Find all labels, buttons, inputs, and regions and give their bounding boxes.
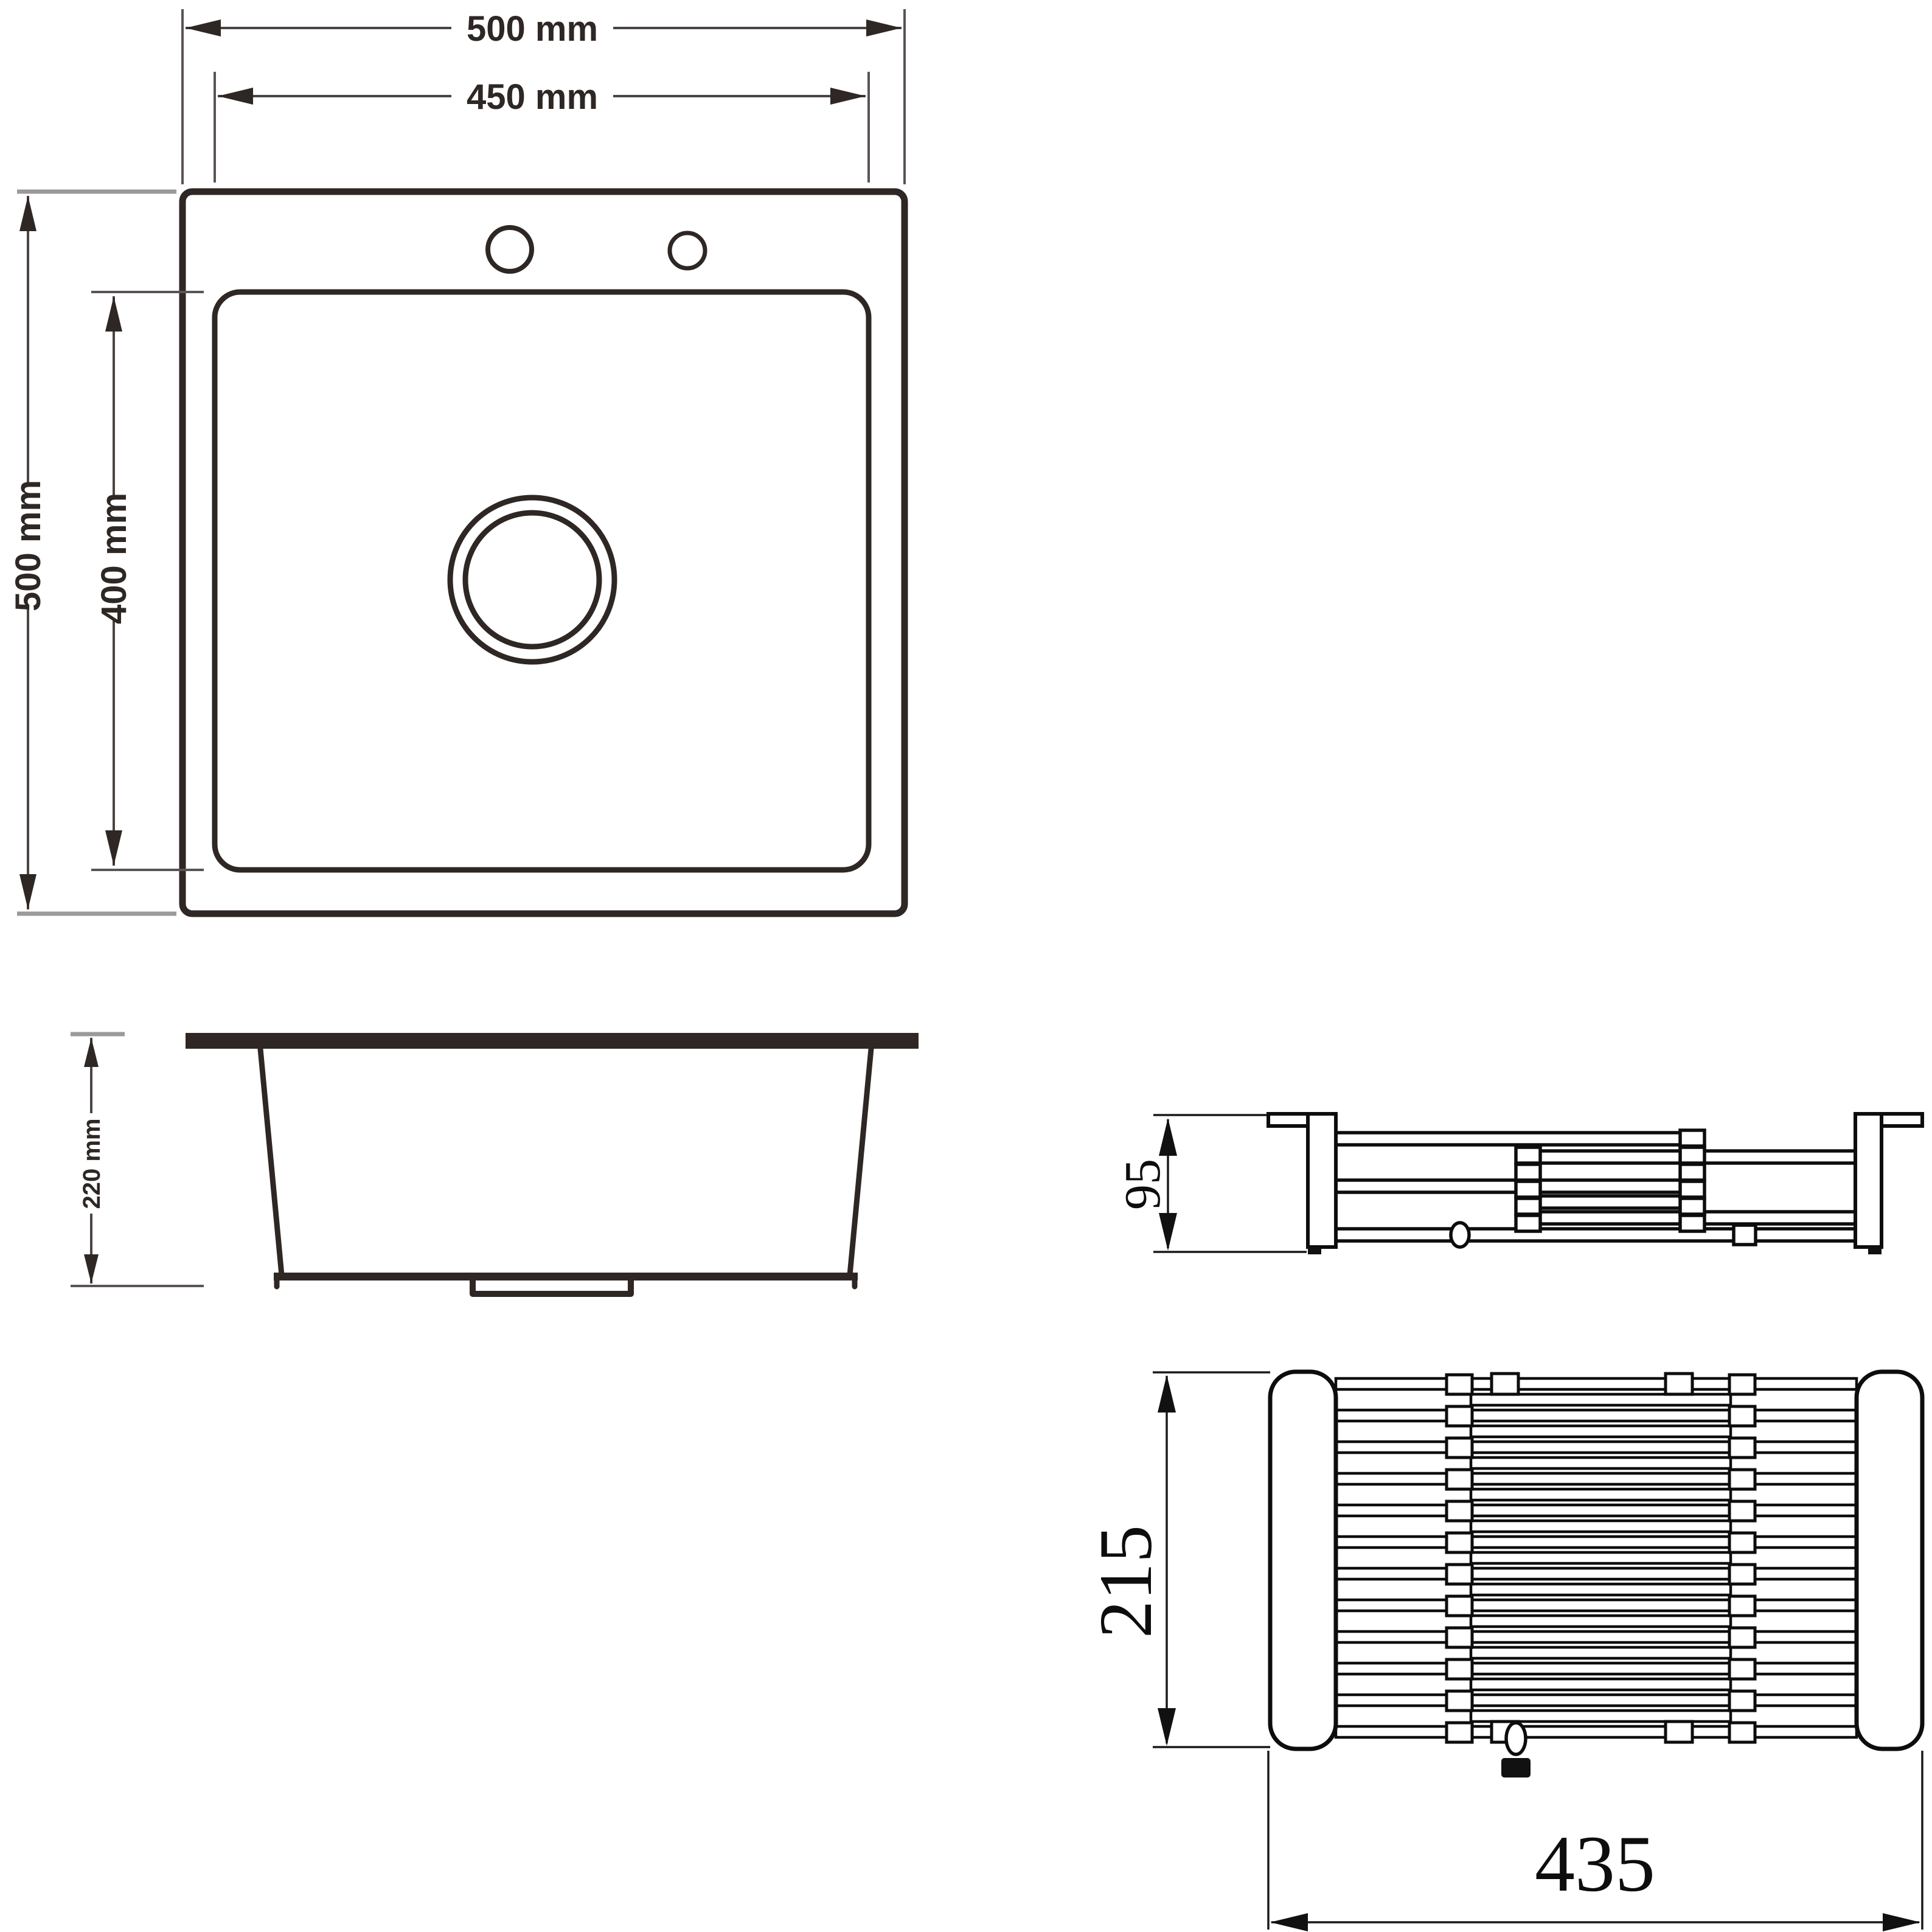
arrowhead-top xyxy=(19,196,36,231)
rack-rod-middle xyxy=(1471,1711,1731,1722)
connector-block xyxy=(1447,1533,1472,1552)
sink-bowl-edge xyxy=(215,292,869,870)
extension-lines xyxy=(1153,1372,1270,1747)
connector-block xyxy=(1447,1691,1472,1711)
arrowhead-right xyxy=(830,88,866,105)
drain-flange xyxy=(450,498,614,662)
dim-label: 500 mm xyxy=(9,480,48,611)
rack-rod-full xyxy=(1336,1600,1857,1611)
dim-label: 435 xyxy=(1535,1819,1655,1908)
connector-block xyxy=(1447,1438,1472,1458)
right-bracket-tab xyxy=(1880,1114,1922,1126)
slider-block xyxy=(1666,1722,1692,1742)
rack-rod-full xyxy=(1336,1378,1857,1389)
rack-rod-full xyxy=(1336,1410,1857,1421)
arrowhead-left xyxy=(218,88,253,105)
rack-side-tube xyxy=(1336,1229,1857,1241)
dim-depth: 220 mm xyxy=(71,1034,204,1286)
arrowhead-top xyxy=(1159,1118,1177,1156)
connector-block xyxy=(1729,1565,1755,1584)
connector-block xyxy=(1680,1130,1704,1146)
sink-outer-edge xyxy=(182,192,905,914)
dim-inner-height: 400 mm xyxy=(91,292,204,870)
countertop-rim xyxy=(186,1033,919,1049)
arrowhead-bottom xyxy=(19,874,36,909)
rack-rod-full xyxy=(1336,1631,1857,1642)
connector-block xyxy=(1729,1596,1755,1616)
bowl-bottom xyxy=(274,1273,858,1280)
dim-inner-width: 450 mm xyxy=(215,72,869,182)
arrowhead-right xyxy=(866,19,902,36)
rack-rod-full xyxy=(1336,1695,1857,1706)
right-bracket-bar xyxy=(1855,1114,1882,1247)
connector-block xyxy=(1729,1659,1755,1679)
rack-rod-middle xyxy=(1471,1647,1731,1658)
right-bracket-foot xyxy=(1868,1247,1882,1254)
dim-basket-length: 215 xyxy=(1084,1372,1270,1747)
connector-block xyxy=(1729,1691,1755,1711)
dim-label: 95 xyxy=(1114,1159,1171,1210)
connector-block xyxy=(1516,1198,1540,1214)
arrowhead-top xyxy=(1158,1375,1176,1413)
arrowhead-bottom xyxy=(105,830,122,866)
connector-block xyxy=(1680,1164,1704,1180)
connector-block xyxy=(1729,1470,1755,1489)
rack-rod-middle xyxy=(1471,1616,1731,1627)
connector-block xyxy=(1516,1164,1540,1180)
rack-rod-middle xyxy=(1471,1489,1731,1500)
arrowhead-bottom xyxy=(1159,1213,1177,1251)
arrowhead-left xyxy=(1270,1913,1308,1931)
dim-label: 400 mm xyxy=(94,493,134,624)
dim-label: 450 mm xyxy=(467,77,598,117)
rack-side-square-knob xyxy=(1734,1225,1756,1245)
connector-block xyxy=(1680,1181,1704,1197)
rack-side-tube xyxy=(1520,1196,1696,1208)
connector-block xyxy=(1447,1501,1472,1521)
extension-lines xyxy=(1153,1115,1307,1252)
rack-side-tubes xyxy=(1336,1133,1857,1241)
connector-block xyxy=(1729,1501,1755,1521)
arrowhead-bottom xyxy=(1158,1708,1176,1746)
drain-stub xyxy=(473,1280,631,1294)
connector-block xyxy=(1729,1723,1755,1742)
rack-rod-middle xyxy=(1471,1584,1731,1595)
rack-rod-middle xyxy=(1471,1679,1731,1690)
bowl-bottom-lips xyxy=(277,1280,855,1287)
dim-label: 500 mm xyxy=(467,9,598,49)
arrowhead-right xyxy=(1883,1913,1920,1931)
connector-block xyxy=(1447,1596,1472,1616)
rack-right-end-bar xyxy=(1857,1372,1922,1749)
arrowhead-top xyxy=(105,296,122,332)
rack-rod-full xyxy=(1336,1663,1857,1674)
connector-block xyxy=(1447,1659,1472,1679)
faucet-hole-small xyxy=(670,233,705,268)
arrowhead-top xyxy=(84,1038,99,1067)
sink-top-view xyxy=(182,192,905,914)
rack-left-end-bar xyxy=(1270,1372,1336,1749)
rack-rod-middle xyxy=(1471,1426,1731,1437)
rack-rod-middle xyxy=(1471,1458,1731,1468)
connector-block xyxy=(1729,1628,1755,1647)
connector-block xyxy=(1516,1147,1540,1163)
left-bracket-foot xyxy=(1308,1247,1321,1254)
connector-block xyxy=(1729,1375,1755,1394)
connector-block xyxy=(1447,1406,1472,1426)
connector-block xyxy=(1729,1438,1755,1458)
connector-block xyxy=(1447,1723,1472,1742)
rack-side-ring-knob xyxy=(1451,1223,1469,1247)
basket-top-view xyxy=(1270,1372,1922,1777)
rack-rod-full xyxy=(1336,1473,1857,1484)
rack-side-tube xyxy=(1336,1133,1696,1145)
rack-rod-middle xyxy=(1471,1394,1731,1405)
drain-opening xyxy=(465,513,599,647)
arrowhead-bottom xyxy=(84,1254,99,1284)
dim-outer-height: 500 mm xyxy=(9,192,176,914)
dim-basket-width: 435 xyxy=(1268,1751,1922,1931)
connector-block xyxy=(1680,1215,1704,1231)
left-bracket-tab xyxy=(1268,1114,1309,1126)
faucet-hole-large xyxy=(488,228,532,271)
rack-rod-full xyxy=(1336,1537,1857,1548)
connector-block xyxy=(1516,1181,1540,1197)
connector-block xyxy=(1516,1215,1540,1231)
rack-rod-full xyxy=(1336,1442,1857,1453)
dim-label: 220 mm xyxy=(78,1119,105,1209)
rack-rod-middle xyxy=(1471,1552,1731,1563)
rack-top-rods xyxy=(1336,1378,1857,1737)
rack-ring-knob xyxy=(1506,1723,1526,1754)
sink-technical-drawing: 500 mm 450 mm 500 mm 400 mm xyxy=(0,0,1932,1932)
connector-block xyxy=(1447,1375,1472,1394)
left-bracket-bar xyxy=(1308,1114,1336,1247)
rack-clamp xyxy=(1501,1758,1531,1777)
connector-block xyxy=(1680,1198,1704,1214)
rack-rod-full xyxy=(1336,1505,1857,1516)
dim-label: 215 xyxy=(1084,1525,1167,1638)
rack-rod-middle xyxy=(1471,1521,1731,1532)
connector-block xyxy=(1447,1565,1472,1584)
connector-block xyxy=(1447,1628,1472,1647)
connector-block xyxy=(1729,1406,1755,1426)
rack-rod-full xyxy=(1336,1568,1857,1579)
connector-block xyxy=(1680,1147,1704,1163)
basket-side-view xyxy=(1268,1114,1922,1254)
connector-block xyxy=(1729,1533,1755,1552)
connector-block xyxy=(1447,1470,1472,1489)
slider-block xyxy=(1492,1374,1518,1394)
bowl-walls xyxy=(260,1049,871,1275)
slider-block xyxy=(1666,1374,1692,1394)
dim-basket-height: 95 xyxy=(1114,1115,1307,1252)
rack-rod-full xyxy=(1336,1726,1857,1737)
arrowhead-left xyxy=(186,19,221,36)
sink-side-view xyxy=(186,1033,919,1294)
